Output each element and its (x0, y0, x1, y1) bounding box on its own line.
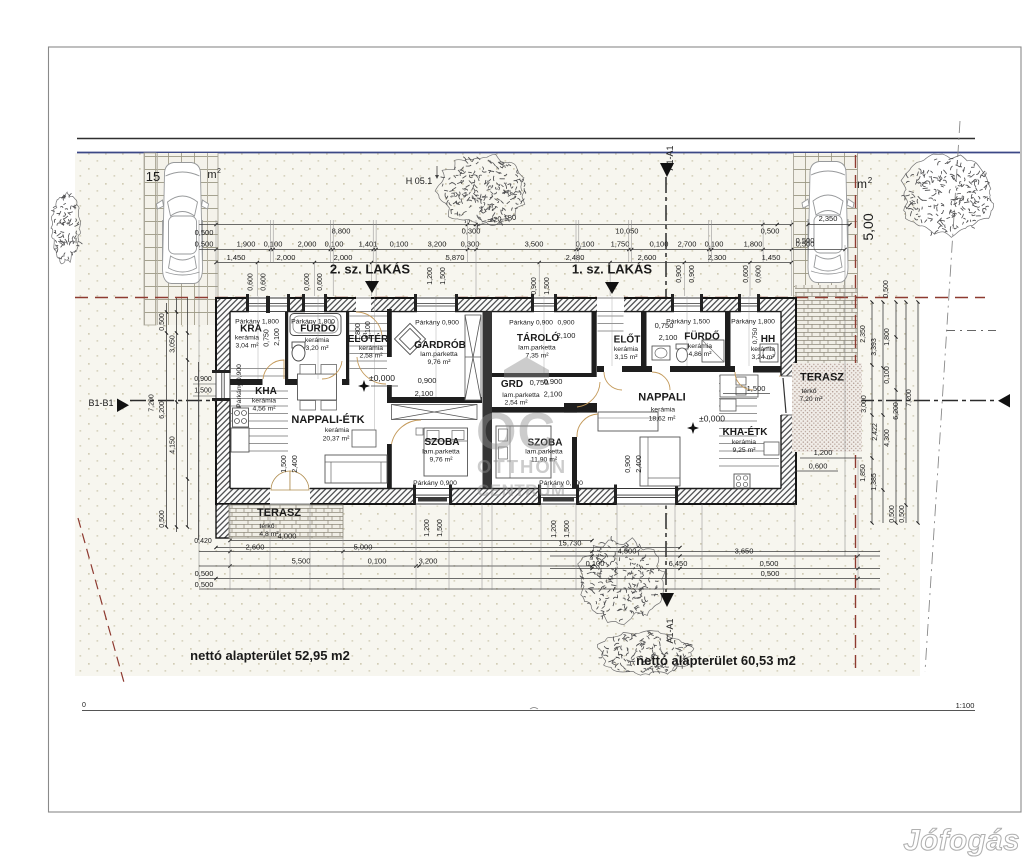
svg-text:2,400: 2,400 (636, 455, 643, 473)
svg-text:0,100: 0,100 (390, 240, 409, 249)
svg-text:A1-A1: A1-A1 (665, 618, 675, 643)
svg-text:2,58 m²: 2,58 m² (359, 353, 383, 360)
svg-text:3,000: 3,000 (861, 395, 868, 413)
svg-text:1,850: 1,850 (860, 464, 867, 482)
svg-text:4,8 m²: 4,8 m² (259, 531, 279, 538)
svg-text:0,600: 0,600 (743, 265, 750, 283)
svg-text:10,050: 10,050 (616, 227, 639, 236)
svg-text:lam.parketta: lam.parketta (518, 345, 556, 352)
svg-text:2,100: 2,100 (365, 321, 372, 339)
svg-text:kerámia: kerámia (359, 345, 383, 352)
svg-text:2,100: 2,100 (659, 333, 678, 342)
svg-text:1,200: 1,200 (427, 267, 434, 285)
svg-text:±0,000: ±0,000 (369, 373, 395, 383)
svg-text:0,500: 0,500 (883, 280, 890, 298)
svg-text:15,730: 15,730 (559, 539, 582, 548)
svg-text:2,100: 2,100 (544, 390, 563, 399)
svg-text:térkő: térkő (259, 523, 274, 530)
svg-text:0,500: 0,500 (760, 559, 779, 568)
svg-text:kerámia: kerámia (751, 346, 775, 353)
svg-text:kerámia: kerámia (252, 398, 276, 405)
svg-text:TERASZ: TERASZ (257, 507, 301, 519)
svg-text:CENTRUM: CENTRUM (477, 481, 566, 500)
svg-text:Párkány 0,900: Párkány 0,900 (236, 364, 243, 408)
svg-text:3,500: 3,500 (525, 240, 544, 249)
svg-text:KHA: KHA (255, 386, 277, 397)
svg-text:0,500: 0,500 (889, 505, 896, 523)
svg-text:0,900: 0,900 (676, 265, 683, 283)
svg-text:9,76 m²: 9,76 m² (427, 359, 451, 366)
svg-text:3,200: 3,200 (419, 557, 438, 566)
svg-text:4,300: 4,300 (884, 429, 891, 447)
svg-text:0,500: 0,500 (195, 240, 214, 249)
svg-text:8,800: 8,800 (332, 227, 351, 236)
svg-text:OTTHON: OTTHON (477, 456, 567, 477)
svg-text:0,500: 0,500 (195, 228, 214, 237)
svg-text:1,800: 1,800 (355, 323, 362, 341)
svg-text:nettó alapterület 52,95 m2: nettó alapterület 52,95 m2 (190, 648, 350, 663)
svg-text:Jófogás: Jófogás (903, 824, 1020, 857)
svg-text:0,500: 0,500 (796, 236, 815, 245)
svg-text:0,100: 0,100 (576, 240, 595, 249)
svg-text:lam.parketta: lam.parketta (420, 351, 458, 358)
svg-text:7,200: 7,200 (906, 389, 913, 407)
svg-text:9,76 m²: 9,76 m² (429, 457, 453, 464)
svg-text:NAPPALI-ÉTK: NAPPALI-ÉTK (291, 413, 364, 426)
svg-text:6,200: 6,200 (159, 401, 166, 419)
svg-text:1,800: 1,800 (884, 328, 891, 346)
svg-text:KRA: KRA (240, 324, 262, 335)
svg-text:0,500: 0,500 (195, 569, 214, 578)
svg-text:0,100: 0,100 (586, 559, 605, 568)
svg-text:1:100: 1:100 (956, 701, 975, 710)
svg-text:2,300: 2,300 (708, 253, 727, 262)
svg-text:4,150: 4,150 (170, 436, 177, 454)
svg-text:4,000: 4,000 (278, 532, 297, 541)
svg-text:Párkány 0,900: Párkány 0,900 (509, 320, 553, 327)
svg-text:0,100: 0,100 (705, 240, 724, 249)
svg-text:0,500: 0,500 (159, 510, 166, 528)
svg-text:1,900: 1,900 (237, 240, 256, 249)
svg-text:kerámia: kerámia (235, 335, 259, 342)
svg-text:KHA-ÉTK: KHA-ÉTK (723, 425, 769, 438)
svg-text:2,350: 2,350 (860, 325, 867, 343)
svg-text:1,200: 1,200 (424, 519, 431, 537)
svg-text:OC: OC (476, 403, 556, 461)
svg-text:2. sz. LAKÁS: 2. sz. LAKÁS (330, 262, 411, 277)
svg-text:2,350: 2,350 (819, 214, 838, 223)
svg-text:Párkány 1,500: Párkány 1,500 (666, 319, 710, 326)
svg-text:4,500: 4,500 (618, 547, 637, 556)
svg-text:2,480: 2,480 (566, 253, 585, 262)
svg-text:lam.parketta: lam.parketta (502, 392, 540, 399)
svg-text:kerámia: kerámia (688, 343, 712, 350)
svg-text:1,500: 1,500 (281, 455, 288, 473)
svg-text:5,500: 5,500 (292, 557, 311, 566)
svg-text:FÜRDŐ: FÜRDŐ (300, 322, 336, 335)
svg-text:lam.parketta: lam.parketta (422, 449, 460, 456)
svg-text:HH: HH (761, 334, 775, 345)
svg-text:0,500: 0,500 (159, 313, 166, 331)
svg-text:1,500: 1,500 (194, 388, 212, 395)
svg-text:nettó alapterület 60,53 m2: nettó alapterület 60,53 m2 (636, 653, 796, 668)
svg-text:0,900: 0,900 (544, 377, 563, 386)
svg-text:4,86 m²: 4,86 m² (688, 351, 712, 358)
svg-text:1,800: 1,800 (744, 240, 763, 249)
svg-text:Párkány 0,900: Párkány 0,900 (415, 320, 459, 327)
svg-text:±0,000: ±0,000 (699, 414, 725, 424)
svg-text:0,500: 0,500 (195, 580, 214, 589)
svg-text:H 05.1: H 05.1 (406, 176, 433, 186)
svg-text:kerámia: kerámia (732, 439, 756, 446)
svg-text:0,100: 0,100 (650, 240, 669, 249)
svg-text:7,35 m²: 7,35 m² (525, 353, 549, 360)
svg-text:3,24 m²: 3,24 m² (751, 354, 775, 361)
svg-text:kerámia: kerámia (651, 407, 675, 414)
svg-text:9,25 m²: 9,25 m² (732, 447, 756, 454)
svg-text:ELŐT: ELŐT (614, 333, 641, 346)
svg-text:3,050: 3,050 (170, 335, 177, 353)
svg-text:2,000: 2,000 (334, 253, 353, 262)
svg-text:5,00: 5,00 (860, 213, 876, 240)
svg-text:3,20 m²: 3,20 m² (305, 345, 329, 352)
svg-text:NAPPALI: NAPPALI (638, 392, 685, 404)
svg-text:0,600: 0,600 (248, 273, 255, 291)
svg-text:6,200: 6,200 (893, 402, 900, 420)
svg-text:0,500: 0,500 (761, 569, 780, 578)
svg-text:GARDRÓB: GARDRÓB (414, 338, 466, 351)
svg-text:0,500: 0,500 (761, 227, 780, 236)
svg-text:2,400: 2,400 (292, 455, 299, 473)
svg-text:0,100: 0,100 (368, 557, 387, 566)
svg-text:0,300: 0,300 (462, 227, 481, 236)
svg-text:0,500: 0,500 (899, 505, 906, 523)
svg-text:0,420: 0,420 (194, 538, 212, 545)
svg-text:5,870: 5,870 (446, 253, 465, 262)
svg-text:3,15 m²: 3,15 m² (614, 354, 638, 361)
svg-text:0,600: 0,600 (317, 273, 324, 291)
svg-text:1,200: 1,200 (551, 520, 558, 538)
svg-text:1,500: 1,500 (440, 267, 447, 285)
svg-text:0,600: 0,600 (261, 273, 268, 291)
svg-text:1,450: 1,450 (227, 253, 246, 262)
svg-text:7,20 m²: 7,20 m² (799, 396, 823, 403)
svg-text:Párkány 1,800: Párkány 1,800 (731, 319, 775, 326)
svg-text:2,000: 2,000 (277, 253, 296, 262)
svg-text:1,200: 1,200 (814, 448, 833, 457)
svg-text:2,700: 2,700 (678, 240, 697, 249)
svg-text:0,900: 0,900 (557, 320, 574, 327)
svg-text:0,600: 0,600 (304, 273, 311, 291)
svg-text:0,100: 0,100 (325, 240, 344, 249)
svg-text:FÜRDŐ: FÜRDŐ (684, 330, 720, 343)
svg-text:m: m (207, 169, 216, 181)
svg-text:0,750: 0,750 (752, 327, 759, 344)
svg-text:0,300: 0,300 (461, 240, 480, 249)
svg-text:18,62 m²: 18,62 m² (649, 416, 677, 423)
svg-text:0,900: 0,900 (531, 277, 538, 295)
svg-text:20,37 m²: 20,37 m² (323, 436, 351, 443)
svg-text:0: 0 (82, 702, 86, 709)
svg-text:Párkány 0,900: Párkány 0,900 (413, 480, 457, 487)
svg-text:3,650: 3,650 (735, 547, 754, 556)
svg-text:1,500: 1,500 (564, 520, 571, 538)
svg-text:0,600: 0,600 (809, 462, 828, 471)
svg-text:0,900: 0,900 (418, 376, 437, 385)
svg-text:1,500: 1,500 (544, 277, 551, 295)
svg-text:2,600: 2,600 (246, 543, 265, 552)
svg-text:1,450: 1,450 (762, 253, 781, 262)
svg-text:1,385: 1,385 (871, 473, 878, 491)
svg-text:kerámia: kerámia (305, 337, 329, 344)
svg-text:2,100: 2,100 (415, 389, 434, 398)
svg-text:1,500: 1,500 (747, 384, 766, 393)
svg-text:2,100: 2,100 (557, 331, 576, 340)
svg-text:1,500: 1,500 (437, 519, 444, 537)
svg-text:0,600: 0,600 (756, 265, 763, 283)
svg-text:3,200: 3,200 (428, 240, 447, 249)
svg-text:kerámia: kerámia (614, 346, 638, 353)
svg-text:0,900: 0,900 (689, 265, 696, 283)
svg-text:kerámia: kerámia (325, 427, 349, 434)
svg-text:1,401: 1,401 (359, 240, 378, 249)
svg-text:0,900: 0,900 (194, 376, 212, 383)
svg-text:2,600: 2,600 (638, 253, 657, 262)
svg-text:0,750: 0,750 (264, 329, 271, 347)
svg-text:5,000: 5,000 (354, 543, 373, 552)
svg-text:B1-B1: B1-B1 (88, 398, 113, 408)
svg-text:3,393: 3,393 (871, 338, 878, 356)
svg-text:4,56 m²: 4,56 m² (252, 406, 276, 413)
svg-text:2: 2 (868, 176, 873, 185)
svg-text:m: m (857, 177, 867, 191)
svg-text:1,750: 1,750 (611, 240, 630, 249)
svg-text:GRD: GRD (501, 379, 523, 390)
svg-text:2,100: 2,100 (274, 328, 281, 346)
svg-text:1. sz. LAKÁS: 1. sz. LAKÁS (572, 262, 653, 277)
svg-text:0,100: 0,100 (884, 366, 891, 384)
svg-text:0,900: 0,900 (625, 455, 632, 473)
svg-text:2: 2 (217, 168, 221, 175)
svg-text:3,04 m²: 3,04 m² (235, 343, 259, 350)
svg-text:SZOBA: SZOBA (425, 437, 460, 448)
svg-text:7,200: 7,200 (149, 394, 156, 412)
svg-text:6,450: 6,450 (669, 559, 688, 568)
svg-text:TÁROLÓ: TÁROLÓ (517, 331, 559, 344)
svg-text:2,422: 2,422 (872, 423, 879, 441)
svg-text:15: 15 (146, 169, 160, 184)
svg-text:térkő: térkő (801, 388, 816, 395)
svg-text:TERASZ: TERASZ (800, 372, 844, 384)
svg-text:2,000: 2,000 (298, 240, 317, 249)
